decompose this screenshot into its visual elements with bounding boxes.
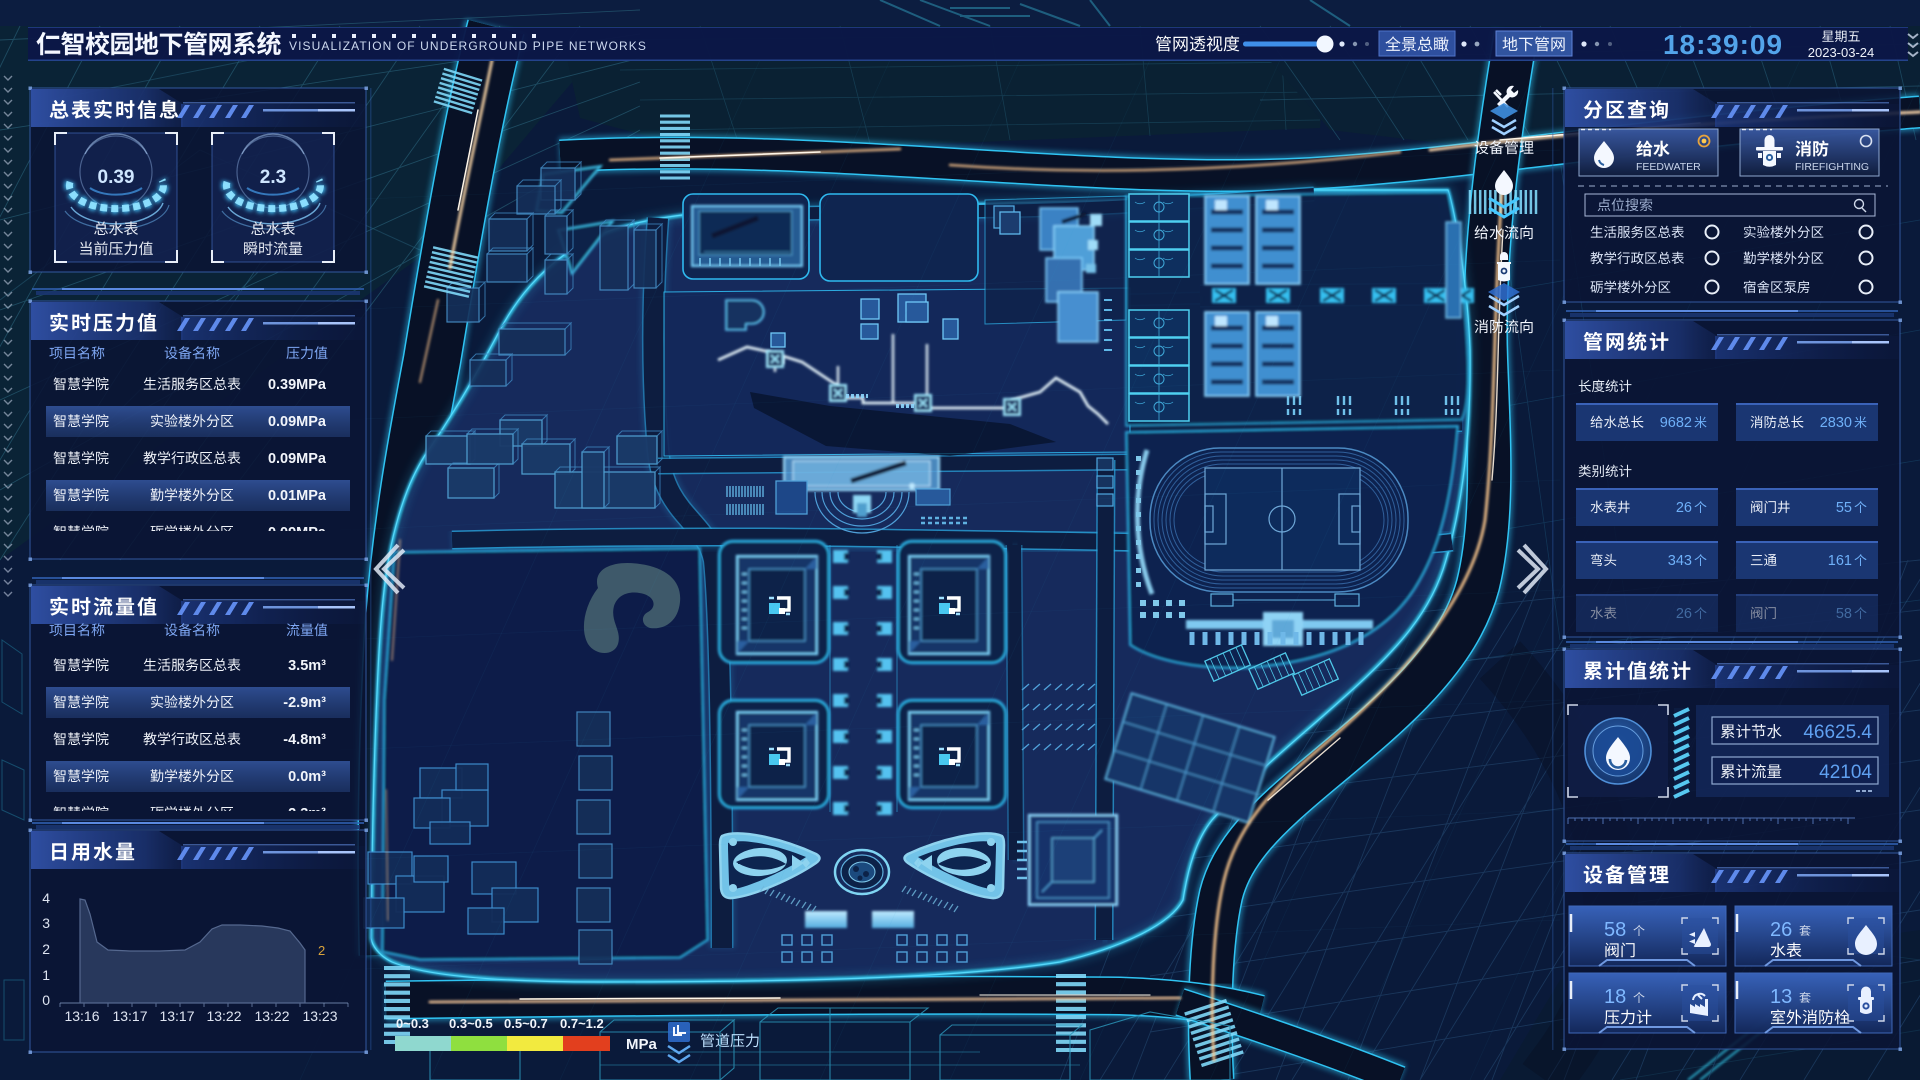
svg-text:13:22: 13:22	[254, 1008, 289, 1024]
svg-text:343: 343	[1668, 553, 1692, 569]
svg-text:46625.4: 46625.4	[1803, 722, 1872, 743]
svg-text:0: 0	[42, 992, 50, 1008]
svg-text:0.5~0.7: 0.5~0.7	[504, 1016, 548, 1031]
svg-text:58: 58	[1836, 606, 1852, 622]
svg-text:55: 55	[1836, 500, 1852, 516]
svg-text:26: 26	[1770, 919, 1792, 941]
svg-text:0.3~0.5: 0.3~0.5	[449, 1016, 493, 1031]
svg-text:2023-03-24: 2023-03-24	[1808, 45, 1875, 60]
svg-text:26: 26	[1676, 606, 1692, 622]
svg-text:0.01MPa: 0.01MPa	[268, 488, 327, 504]
svg-text:13:22: 13:22	[206, 1008, 241, 1024]
svg-text:0.7~1.2: 0.7~1.2	[560, 1016, 604, 1031]
svg-text:13:17: 13:17	[112, 1008, 147, 1024]
svg-text:2830: 2830	[1820, 415, 1852, 431]
svg-text:2.3: 2.3	[260, 167, 286, 188]
svg-text:18:39:09: 18:39:09	[1663, 29, 1783, 60]
svg-text:13: 13	[1770, 986, 1792, 1008]
svg-text:13:23: 13:23	[302, 1008, 337, 1024]
svg-text:3: 3	[42, 915, 50, 931]
svg-text:MPa: MPa	[626, 1036, 658, 1053]
svg-text:9682: 9682	[1660, 415, 1692, 431]
svg-text:0~0.3: 0~0.3	[396, 1016, 429, 1031]
svg-text:26: 26	[1676, 500, 1692, 516]
svg-text:0.39MPa: 0.39MPa	[268, 377, 327, 393]
svg-text:13:16: 13:16	[64, 1008, 99, 1024]
svg-text:2: 2	[42, 941, 50, 957]
svg-text:161: 161	[1828, 553, 1852, 569]
svg-text:FEEDWATER: FEEDWATER	[1636, 161, 1701, 173]
svg-text:58: 58	[1604, 919, 1626, 941]
svg-text:1: 1	[42, 967, 50, 983]
svg-text:18: 18	[1604, 986, 1626, 1008]
svg-text:0.09MPa: 0.09MPa	[268, 451, 327, 467]
svg-text:0.0m³: 0.0m³	[288, 769, 326, 785]
svg-text:2: 2	[318, 943, 325, 958]
svg-text:VISUALIZATION OF UNDERGROUND P: VISUALIZATION OF UNDERGROUND PIPE NETWOR…	[289, 39, 647, 53]
svg-text:3.5m³: 3.5m³	[288, 658, 326, 674]
svg-text:-4.8m³: -4.8m³	[283, 732, 326, 748]
svg-text:4: 4	[42, 890, 50, 906]
svg-text:13:17: 13:17	[159, 1008, 194, 1024]
svg-text:FIREFIGHTING: FIREFIGHTING	[1795, 161, 1869, 173]
svg-text:42104: 42104	[1819, 762, 1872, 783]
svg-text:-2.9m³: -2.9m³	[283, 695, 326, 711]
svg-text:0.39: 0.39	[98, 167, 135, 188]
svg-text:0.09MPa: 0.09MPa	[268, 414, 327, 430]
